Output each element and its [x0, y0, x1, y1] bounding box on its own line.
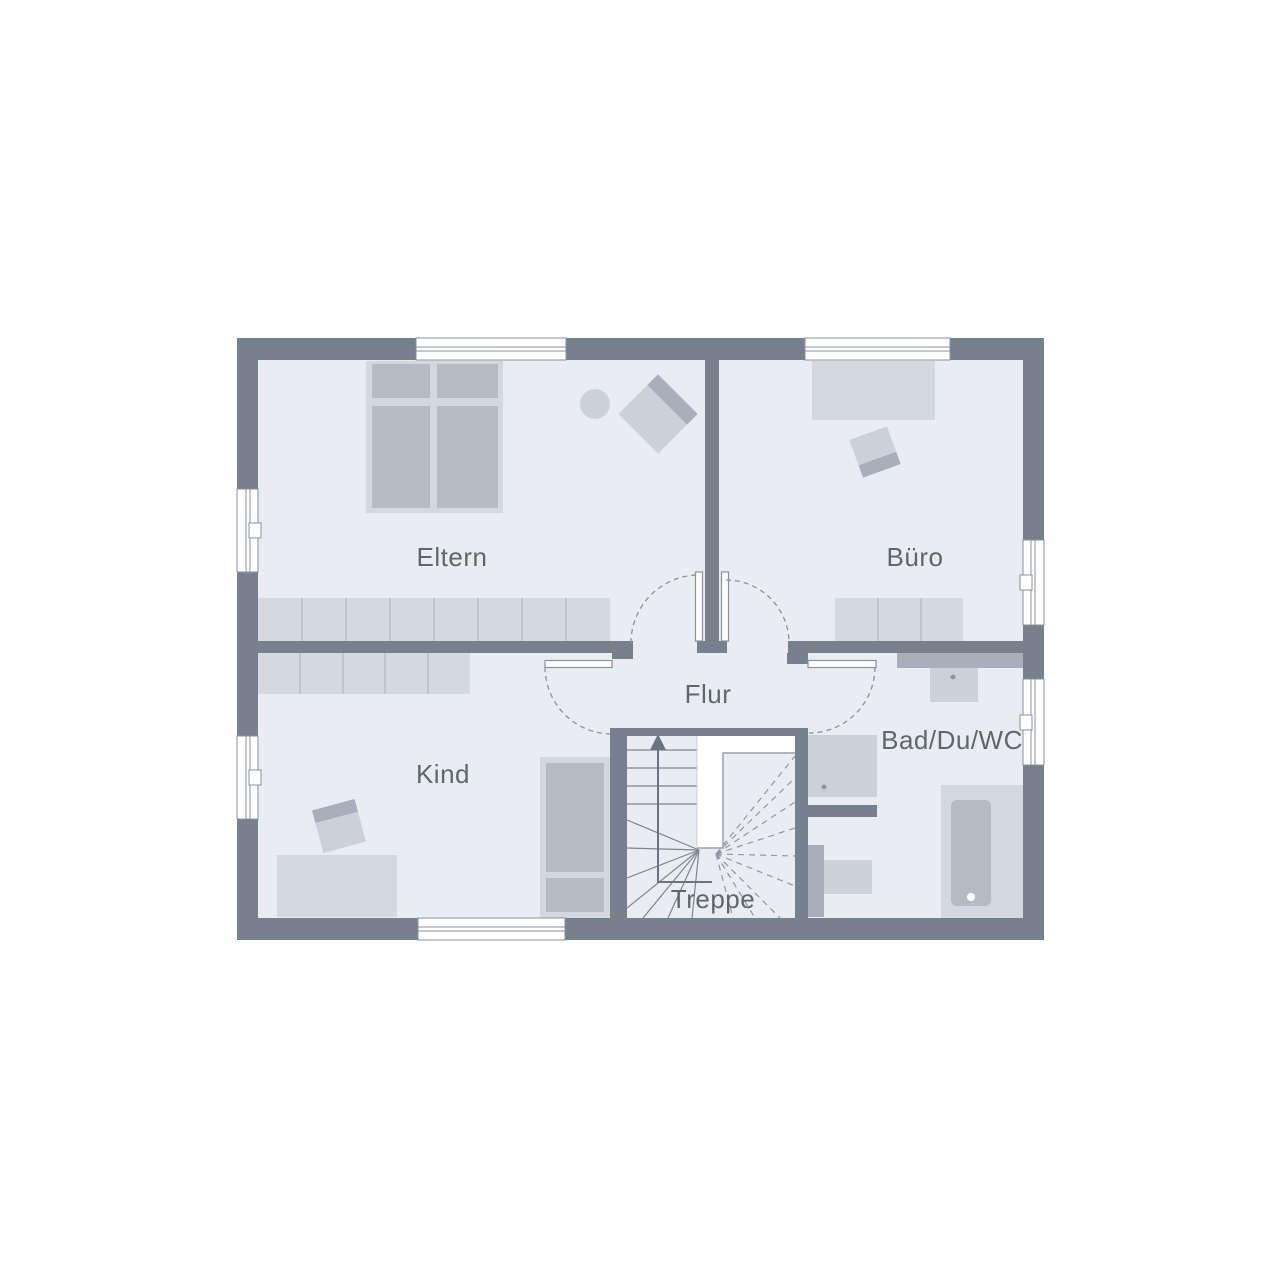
sideboard-buero [835, 598, 963, 641]
double-bed [366, 361, 503, 513]
window-handle [1020, 575, 1032, 590]
wardrobe-kind [258, 653, 470, 694]
bath-shelf [897, 653, 1023, 668]
window-left-kind [237, 736, 261, 819]
outer-wall-bottom [237, 918, 1044, 940]
window-left-eltern [237, 489, 261, 572]
wall-buero-bad [788, 641, 1023, 653]
wall-jamb-bad-door [787, 653, 808, 664]
wall-bath-partition [795, 805, 877, 817]
wall-stair-right [795, 730, 808, 918]
window-handle [249, 523, 261, 538]
bed-foot [546, 878, 604, 912]
outer-wall-right [1023, 338, 1044, 940]
pillow [437, 364, 498, 398]
pillow [372, 364, 430, 398]
mattress [372, 406, 430, 508]
room-label-flur: Flur [685, 679, 732, 709]
wall-jamb-kind-door [612, 653, 633, 659]
bed-kind [540, 757, 610, 918]
bathtub [941, 785, 1023, 918]
wall-stair-top [610, 728, 808, 736]
wall-eltern-buero-foot [697, 641, 727, 653]
wall-eltern-kind [258, 641, 633, 653]
mattress [546, 763, 604, 872]
room-label-treppe: Treppe [671, 884, 755, 914]
window-right-buero [1020, 540, 1044, 625]
washbasin [930, 668, 978, 702]
room-label-buero: Büro [887, 542, 944, 572]
window-handle [249, 770, 261, 785]
outer-wall-left [237, 338, 258, 940]
floor-plan-page: Eltern Büro Flur Kind Bad/Du/WC Treppe [0, 0, 1280, 1280]
floor-plan: Eltern Büro Flur Kind Bad/Du/WC Treppe [0, 0, 1280, 1280]
desk-kind [277, 855, 397, 917]
window-top-buero [805, 338, 950, 360]
window-top-eltern [416, 338, 566, 360]
wall-eltern-buero [705, 360, 719, 641]
window-right-bad [1020, 679, 1044, 765]
room-label-bad: Bad/Du/WC [881, 725, 1023, 755]
wall-stair-left [610, 728, 627, 918]
window-bottom-kind [418, 918, 565, 940]
room-label-eltern: Eltern [417, 542, 488, 572]
mattress [437, 406, 498, 508]
shower [808, 735, 877, 797]
side-table [580, 389, 610, 419]
desk [812, 361, 935, 420]
wardrobe-eltern [258, 598, 610, 641]
room-label-kind: Kind [416, 759, 470, 789]
